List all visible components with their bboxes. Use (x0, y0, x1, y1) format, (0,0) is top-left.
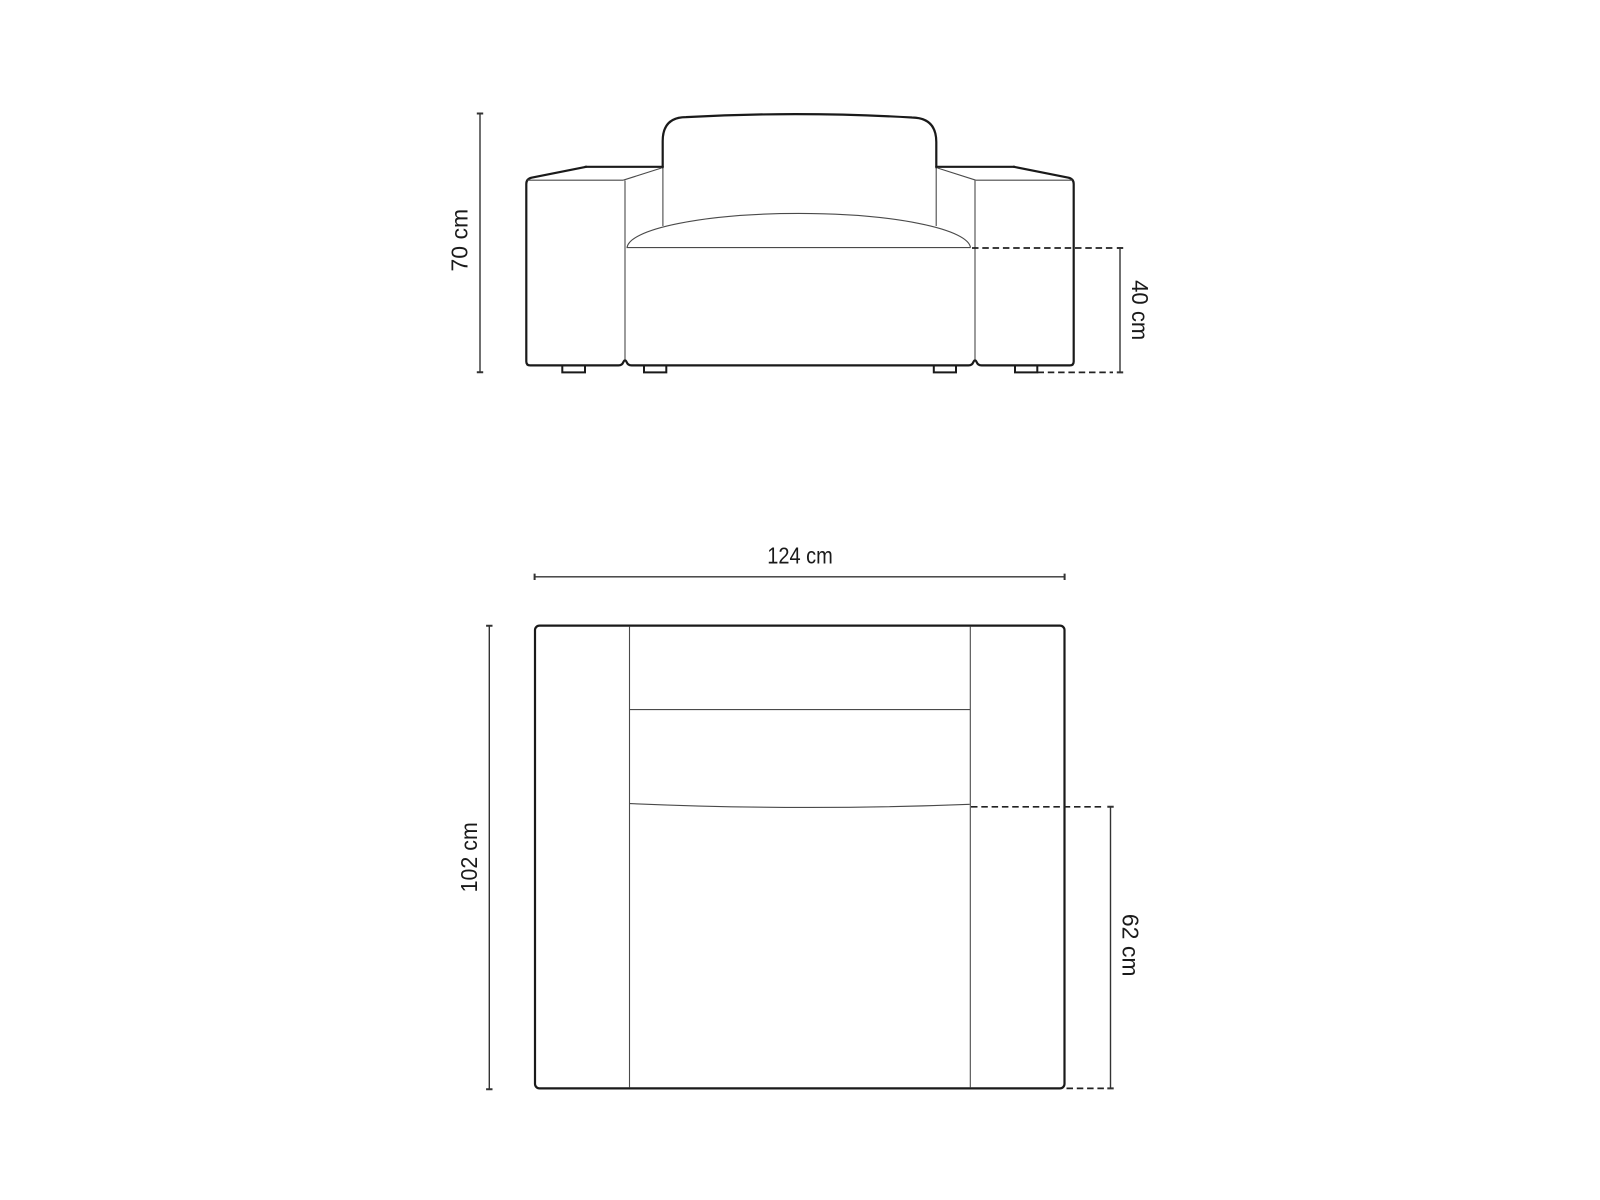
svg-text:102 cm: 102 cm (456, 822, 482, 892)
svg-text:62 cm: 62 cm (1118, 914, 1144, 977)
svg-text:124 cm: 124 cm (767, 542, 833, 569)
svg-text:70 cm: 70 cm (447, 209, 473, 272)
svg-text:40 cm: 40 cm (1127, 280, 1153, 340)
